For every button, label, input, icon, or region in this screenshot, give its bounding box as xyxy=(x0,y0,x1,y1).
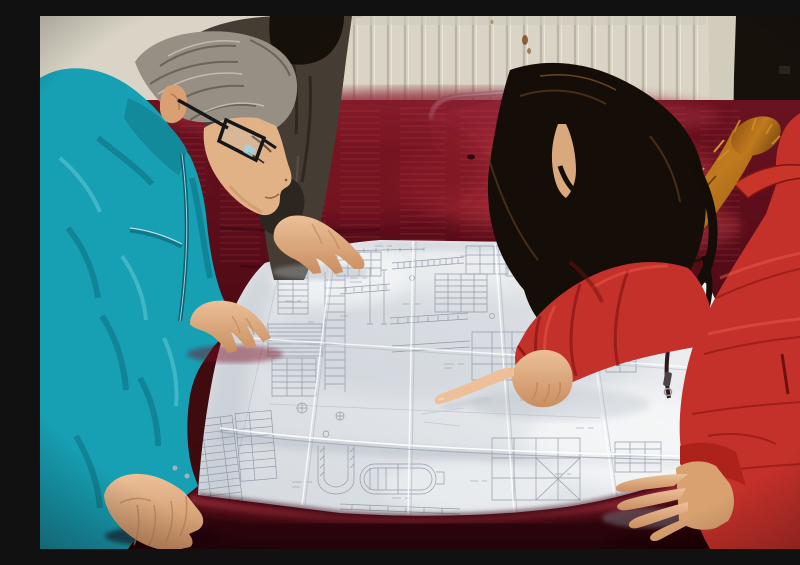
photo-scene: Three people lean over a large folded en… xyxy=(40,16,800,549)
scene-canvas xyxy=(40,16,800,549)
vignette-overlay xyxy=(40,16,800,549)
